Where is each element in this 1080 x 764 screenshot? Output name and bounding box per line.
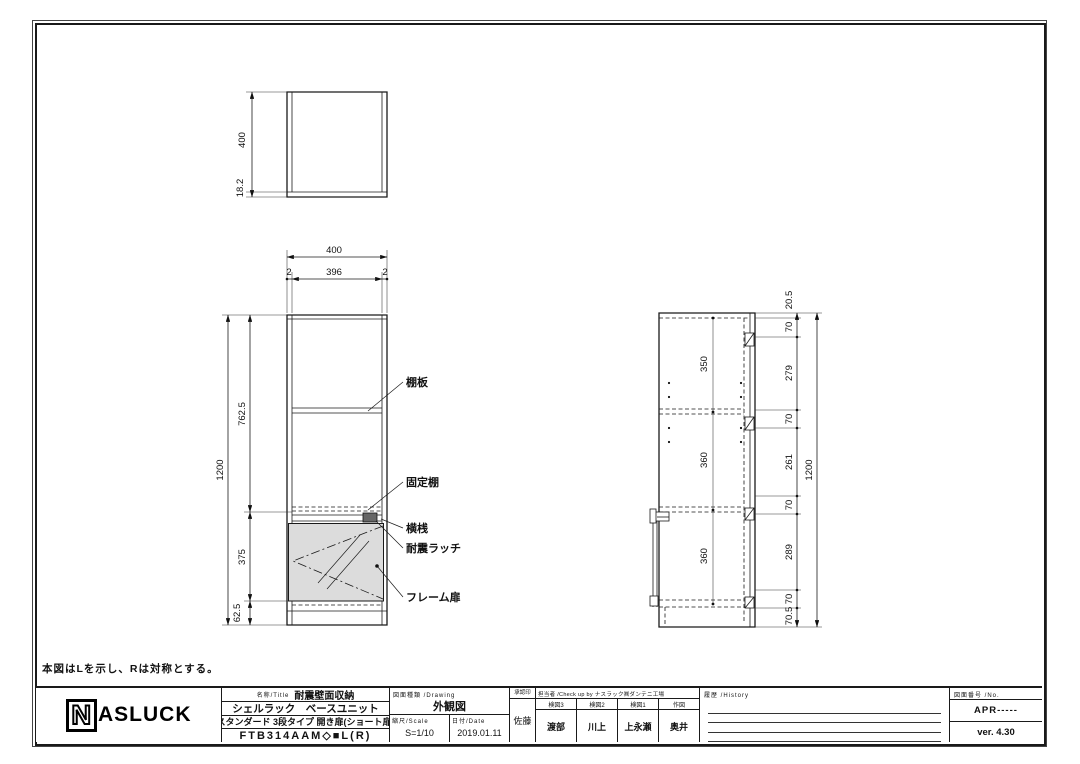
front-view: 400 2 396 2 1200 762.5 375 62.5 棚板 xyxy=(215,245,461,625)
dim-side-s2: 261 xyxy=(784,454,795,470)
label-latch: 耐震ラッチ xyxy=(406,541,461,555)
version: ver. 4.30 xyxy=(950,722,1042,742)
check-cell: 担当者 /Check up by ナスラック㈱ダンテニ工場 検図3 検図2 検図… xyxy=(536,688,700,742)
drawing-cell: 図面種類 /Drawing 外観図 縮尺/Scale S=1/10 日付/Dat… xyxy=(390,688,510,742)
dim-side-t3: 70 xyxy=(784,500,795,511)
lr-note: 本図はLを示し、Rは対称とする。 xyxy=(42,661,219,676)
dim-side-i3: 360 xyxy=(699,548,710,564)
dim-front-edge-left: 2 xyxy=(286,267,291,278)
dim-side-s1: 279 xyxy=(784,365,795,381)
product-category: 耐震壁面収納 xyxy=(294,688,354,702)
approval-label: 承認印 xyxy=(510,688,535,699)
date-label: 日付/Date xyxy=(452,716,485,725)
dim-front-height: 1200 xyxy=(215,459,226,480)
approver-name: 佐藤 xyxy=(510,699,535,742)
label-shelf: 棚板 xyxy=(406,375,429,389)
dim-front-edge-right: 2 xyxy=(382,267,387,278)
shelf-pin-holes xyxy=(668,382,742,443)
approval-cell: 承認印 佐藤 xyxy=(510,688,536,742)
scale-value: S=1/10 xyxy=(390,728,449,738)
checker-name-3: 渡部 xyxy=(536,710,577,742)
latch-block xyxy=(363,513,377,522)
checker-name-1: 上永瀬 xyxy=(618,710,659,742)
logo-text: ASLUCK xyxy=(98,703,192,727)
dim-top-back: 18.2 xyxy=(235,179,246,198)
check-role-3: 検図3 xyxy=(536,699,577,709)
date-value: 2019.01.11 xyxy=(450,728,509,738)
label-rail: 横桟 xyxy=(406,521,428,535)
check-role-1: 検図1 xyxy=(618,699,659,709)
history-lines xyxy=(708,704,941,742)
product-code: FTB314AAM◇■L(R) xyxy=(222,729,389,742)
side-dims: 20.5 70 279 70 261 70 289 70 70.5 1200 xyxy=(755,291,822,627)
dim-front-width: 400 xyxy=(326,245,342,256)
drawing-number: APR----- xyxy=(950,700,1042,722)
dim-side-s3: 289 xyxy=(784,544,795,560)
drawing-sheet: 400 18.2 xyxy=(0,0,1080,764)
dim-side-t1: 70 xyxy=(784,322,795,333)
label-frame-door: フレーム扉 xyxy=(406,590,461,604)
drawing-type: 外観図 xyxy=(390,698,509,714)
scale-label: 縮尺/Scale xyxy=(392,716,429,725)
side-view: 350 360 360 xyxy=(650,291,822,627)
check-role-2: 検図2 xyxy=(577,699,618,709)
dim-front-upper: 762.5 xyxy=(237,402,248,426)
dim-front-inner: 396 xyxy=(326,267,342,278)
dim-top-depth: 400 xyxy=(237,132,248,148)
nasluck-logo: NASLUCK xyxy=(66,699,192,732)
history-label: 履歴 /History xyxy=(704,690,749,699)
dim-side-i1: 350 xyxy=(699,356,710,372)
title-block: NASLUCK 名称/Title 耐震壁面収納 シェルラック ベースユニット ス… xyxy=(36,686,1042,742)
number-label: 図面番号 /No. xyxy=(950,688,1042,700)
rail-sections xyxy=(745,333,754,608)
checker-name-2: 川上 xyxy=(577,710,618,742)
drafter-name: 奥井 xyxy=(659,710,699,742)
title-label: 名称/Title xyxy=(257,690,290,699)
number-cell: 図面番号 /No. APR----- ver. 4.30 xyxy=(950,688,1042,742)
check-label: 担当者 /Check up by ナスラック㈱ダンテニ工場 xyxy=(536,688,699,699)
dim-side-base: 70.5 xyxy=(784,607,795,626)
dim-front-base: 62.5 xyxy=(232,604,243,623)
cad-drawing: 400 18.2 xyxy=(0,0,1080,764)
product-series: シェルラック ベースユニット xyxy=(222,702,389,716)
logo-cell: NASLUCK xyxy=(36,688,222,742)
dim-side-height: 1200 xyxy=(804,459,815,480)
title-cell: 名称/Title 耐震壁面収納 シェルラック ベースユニット スタンダード 3段… xyxy=(222,688,390,742)
logo-n: N xyxy=(66,699,98,732)
dim-side-i2: 360 xyxy=(699,452,710,468)
dim-side-t2: 70 xyxy=(784,414,795,425)
label-fixed-shelf: 固定棚 xyxy=(406,475,439,489)
dim-front-door: 375 xyxy=(237,549,248,565)
product-type: スタンダード 3段タイプ 開き扉(ショート扉) xyxy=(222,716,389,730)
dim-side-t4: 70 xyxy=(784,594,795,605)
check-role-draft: 作図 xyxy=(659,699,699,709)
dim-side-top: 20.5 xyxy=(784,291,795,310)
history-cell: 履歴 /History xyxy=(700,688,950,742)
top-view: 400 18.2 xyxy=(235,92,387,197)
